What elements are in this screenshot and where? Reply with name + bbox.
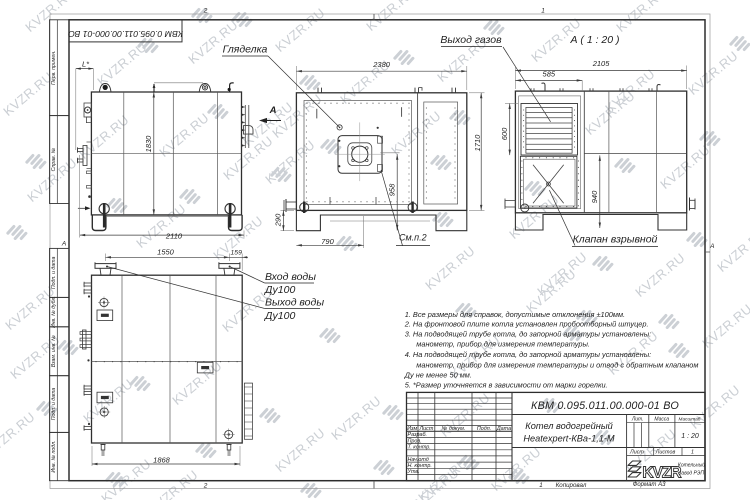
svg-text:585: 585	[543, 70, 556, 79]
svg-text:Котел водогрейный: Котел водогрейный	[525, 421, 612, 431]
svg-text:2105: 2105	[592, 59, 611, 68]
svg-text:Гляделка: Гляделка	[223, 44, 268, 56]
svg-text:завод РЭП: завод РЭП	[678, 471, 704, 477]
svg-text:940: 940	[590, 190, 599, 203]
svg-text:Т. контр.: Т. контр.	[408, 445, 431, 451]
svg-text:Вход воды: Вход воды	[265, 271, 316, 283]
svg-text:Инв. № дубл.: Инв. № дубл.	[51, 296, 57, 328]
svg-text:А: А	[709, 243, 714, 250]
svg-text:Формат А3: Формат А3	[633, 482, 666, 488]
svg-text:См.п.2: См.п.2	[399, 233, 427, 243]
svg-text:Котельный: Котельный	[678, 462, 705, 469]
svg-text:Лит.: Лит.	[631, 417, 644, 423]
svg-text:А: А	[61, 241, 66, 248]
svg-text:4. На подводящей трубе котла,: 4. На подводящей трубе котла, до запорно…	[405, 350, 652, 359]
svg-text:5. *Размер уточняется в зависи: 5. *Размер уточняется в зависимости от м…	[405, 381, 608, 390]
svg-text:манометр, прибор для измерения: манометр, прибор для измерения температу…	[416, 340, 590, 349]
svg-text:L*: L*	[82, 60, 90, 69]
svg-text:Справ. №: Справ. №	[51, 147, 57, 171]
svg-text:Ду не менее 50 мм.: Ду не менее 50 мм.	[404, 371, 472, 380]
svg-text:Утв.: Утв.	[407, 469, 420, 475]
svg-text:Перв. примен.: Перв. примен.	[51, 50, 57, 84]
svg-text:2: 2	[203, 482, 208, 489]
svg-text:Выход газов: Выход газов	[440, 34, 502, 46]
svg-text:Пров.: Пров.	[408, 438, 422, 444]
svg-text:Heatexpert-КВа-1,1-М: Heatexpert-КВа-1,1-М	[523, 434, 615, 444]
svg-text:1868: 1868	[153, 455, 171, 464]
svg-text:Инв. № подл.: Инв. № подл.	[51, 440, 57, 472]
svg-text:Ду100: Ду100	[264, 284, 295, 296]
svg-text:1 : 20: 1 : 20	[681, 433, 699, 440]
svg-text:1830: 1830	[144, 135, 153, 153]
svg-text:2. На фронтовой плите котла ус: 2. На фронтовой плите котла установлен п…	[404, 319, 649, 328]
svg-text:Нач.отд: Нач.отд	[408, 457, 429, 463]
svg-text:KVZR: KVZR	[642, 465, 681, 482]
svg-text:3. На подводящей трубе котла,: 3. На подводящей трубе котла, до запорно…	[405, 329, 652, 338]
svg-text:Выход воды: Выход воды	[265, 297, 324, 309]
svg-text:159: 159	[231, 250, 243, 257]
svg-text:1: 1	[691, 450, 694, 456]
svg-text:КВМ 0.095.011.00.000-01 ВО: КВМ 0.095.011.00.000-01 ВО	[68, 29, 183, 39]
svg-text:2380: 2380	[372, 60, 391, 69]
svg-text:Лист: Лист	[629, 450, 644, 456]
svg-text:600: 600	[500, 127, 509, 140]
svg-text:1: 1	[539, 482, 542, 489]
svg-text:1710: 1710	[473, 134, 482, 152]
svg-text:Разраб.: Разраб.	[408, 432, 428, 438]
svg-text:манометр, прибор для измерения: манометр, прибор для измерения температу…	[416, 361, 698, 370]
svg-text:Копировал: Копировал	[556, 482, 587, 489]
svg-text:Подп.: Подп.	[477, 426, 491, 432]
svg-text:1: 1	[541, 8, 545, 15]
svg-text:КВМ 0.095.011.00.000-01 ВО: КВМ 0.095.011.00.000-01 ВО	[531, 400, 679, 412]
svg-text:Листов: Листов	[655, 450, 676, 456]
svg-text:958: 958	[387, 183, 396, 196]
svg-text:А ( 1 : 20 ): А ( 1 : 20 )	[569, 34, 619, 46]
svg-text:Н. контр.: Н. контр.	[408, 463, 432, 469]
svg-text:Дата: Дата	[496, 426, 511, 432]
svg-text:1. Все размеры для справок, до: 1. Все размеры для справок, допустимые о…	[405, 310, 625, 319]
svg-text:А: А	[269, 105, 277, 116]
svg-text:Подп. и дата: Подп. и дата	[51, 388, 57, 421]
svg-text:Взам. инв. №: Взам. инв. №	[51, 335, 57, 367]
svg-text:Масса: Масса	[654, 417, 669, 423]
svg-text:790: 790	[321, 237, 334, 246]
svg-text:№ докум.: № докум.	[442, 426, 466, 432]
svg-text:2: 2	[203, 8, 208, 15]
svg-text:2110: 2110	[165, 231, 183, 240]
svg-text:Ду100: Ду100	[264, 310, 295, 322]
svg-text:Клапан взрывной: Клапан взрывной	[573, 234, 658, 246]
svg-text:Масштаб: Масштаб	[679, 416, 701, 421]
svg-text:1550: 1550	[157, 248, 175, 257]
svg-text:Подп. и дата: Подп. и дата	[51, 257, 57, 290]
svg-text:290: 290	[274, 213, 283, 227]
